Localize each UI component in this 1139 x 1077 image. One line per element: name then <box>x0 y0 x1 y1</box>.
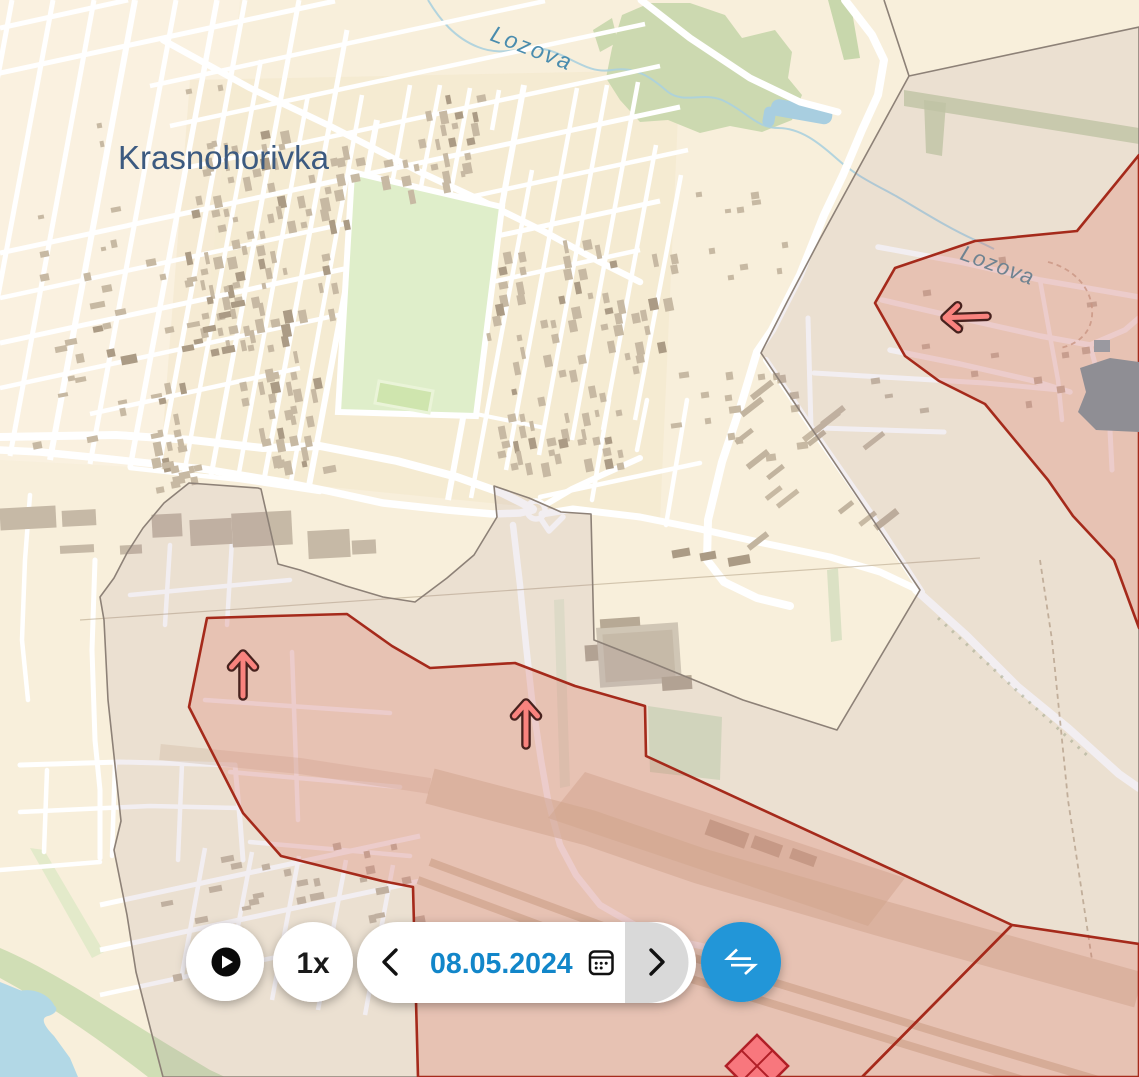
svg-text:08.05.2024: 08.05.2024 <box>430 948 573 980</box>
svg-text:Krasnohorivka: Krasnohorivka <box>118 139 330 176</box>
svg-text:1x: 1x <box>296 947 330 980</box>
